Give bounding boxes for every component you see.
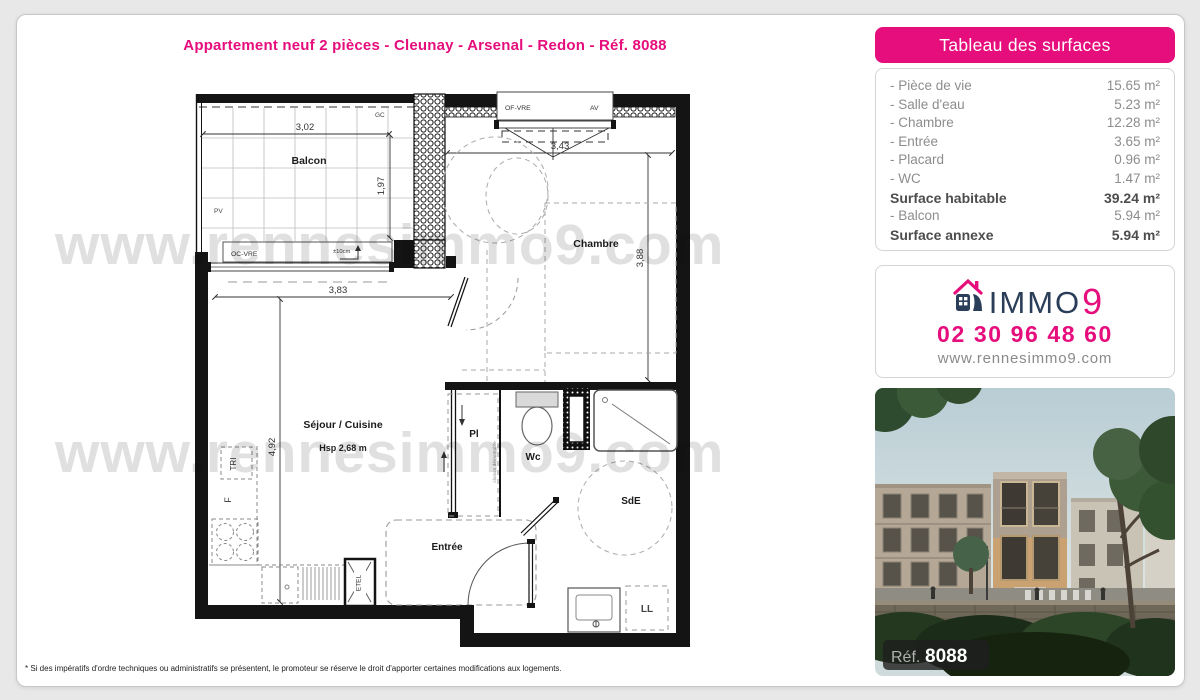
surface-value: 5.94 m² [1114, 207, 1160, 226]
entree-label: Entrée [431, 542, 463, 553]
surface-row: - Placard0.96 m² [890, 151, 1160, 170]
ceiling-height-label: Hsp 2,68 m [319, 443, 367, 453]
surface-label: - WC [890, 170, 921, 189]
surfaces-header: Tableau des surfaces [875, 27, 1175, 63]
surface-value: 39.24 m² [1104, 189, 1160, 208]
balcon-label: Balcon [291, 155, 326, 167]
surface-label: Surface annexe [890, 226, 994, 245]
room-entree: Entrée [386, 497, 559, 608]
surface-row: - Salle d'eau5.23 m² [890, 96, 1160, 115]
surface-value: 15.65 m² [1107, 77, 1160, 96]
footnote: * Si des impératifs d'ordre techniques o… [25, 664, 562, 673]
sde-label: SdE [621, 496, 641, 507]
wc-label: Wc [526, 452, 541, 463]
pv-label: PV [214, 208, 223, 215]
fridge-label: F [223, 497, 233, 503]
brand-digit: 9 [1082, 285, 1102, 318]
dim-sejour-width: 3,83 [329, 285, 348, 296]
of-vre-label: OF-VRE [505, 105, 531, 112]
dim-chambre-width: 3,43 [551, 141, 570, 152]
surface-label: Surface habitable [890, 189, 1007, 208]
building-photo: Réf. 8088 [875, 388, 1175, 676]
house-icon [948, 276, 988, 318]
surface-row: - Entrée3.65 m² [890, 133, 1160, 152]
surface-row: - Chambre12.28 m² [890, 114, 1160, 133]
chambre-label: Chambre [573, 238, 619, 250]
room-chambre: OF-VRE AV 3,43 3,88 Chambre [442, 92, 690, 647]
entrance-door [468, 539, 535, 608]
washer-label: LL [641, 604, 653, 615]
surface-row: - WC1.47 m² [890, 170, 1160, 189]
surface-label: - Salle d'eau [890, 96, 965, 115]
photo-ref-badge: Réf. 8088 [883, 640, 989, 670]
surface-value: 0.96 m² [1114, 151, 1160, 170]
agency-box: IMMO 9 02 30 96 48 60 www.rennesimmo9.co… [875, 265, 1175, 378]
surface-label: - Pièce de vie [890, 77, 972, 96]
ref-number: 8088 [925, 646, 967, 667]
sde-door [521, 497, 559, 536]
gc-label: GC [375, 112, 385, 119]
drainer [303, 567, 339, 600]
surface-label: - Entrée [890, 133, 938, 152]
chambre-door [446, 256, 518, 330]
surface-value: 1.47 m² [1114, 170, 1160, 189]
ref-label: Réf. [891, 649, 920, 666]
surface-value: 12.28 m² [1107, 114, 1160, 133]
room-balcon: 3,02 1,97 Balcon PV GC OC-VRE ±10cm [197, 94, 446, 272]
surface-label: - Chambre [890, 114, 954, 133]
surfaces-table: - Pièce de vie15.65 m²- Salle d'eau5.23 … [875, 68, 1175, 251]
tolerance-label: ±10cm [333, 249, 351, 255]
floor-plan: 3,02 1,97 Balcon PV GC OC-VRE ±10cm [190, 85, 695, 655]
page-title: Appartement neuf 2 pièces - Cleunay - Ar… [60, 37, 790, 54]
dim-balcon-depth: 1,97 [376, 177, 387, 196]
surface-row: Surface annexe5.94 m² [890, 226, 1160, 245]
surface-value: 5.94 m² [1112, 226, 1160, 245]
tri-label: TRI [229, 458, 238, 471]
website-url: www.rennesimmo9.com [876, 350, 1174, 367]
placard-label: Pl [469, 429, 479, 440]
sejour-label: Séjour / Cuisine [303, 419, 383, 431]
surface-value: 3.65 m² [1114, 133, 1160, 152]
surface-label: - Balcon [890, 207, 940, 226]
etel-label: ETEL [356, 574, 363, 591]
kitchen: TRI F [209, 446, 375, 606]
room-sejour: 3,83 4,92 Séjour / Cuisine Hsp 2,68 m TR… [195, 252, 467, 619]
dim-sejour-depth: 4,92 [267, 438, 278, 457]
page: Appartement neuf 2 pièces - Cleunay - Ar… [0, 0, 1200, 700]
surface-row: Surface habitable39.24 m² [890, 189, 1160, 208]
dim-chambre-depth: 3,88 [635, 249, 646, 268]
surface-label: - Placard [890, 151, 944, 170]
surface-row: - Pièce de vie15.65 m² [890, 77, 1160, 96]
agency-logo: IMMO 9 [876, 274, 1174, 318]
dim-balcon-width: 3,02 [296, 122, 315, 133]
partition-label: cloison démontable [492, 441, 498, 483]
av-label: AV [590, 105, 599, 112]
oc-vre-label: OC-VRE [231, 251, 258, 258]
surface-row: - Balcon5.94 m² [890, 207, 1160, 226]
phone-number: 02 30 96 48 60 [876, 321, 1174, 348]
brand-text: IMMO [989, 287, 1081, 318]
surface-value: 5.23 m² [1114, 96, 1160, 115]
